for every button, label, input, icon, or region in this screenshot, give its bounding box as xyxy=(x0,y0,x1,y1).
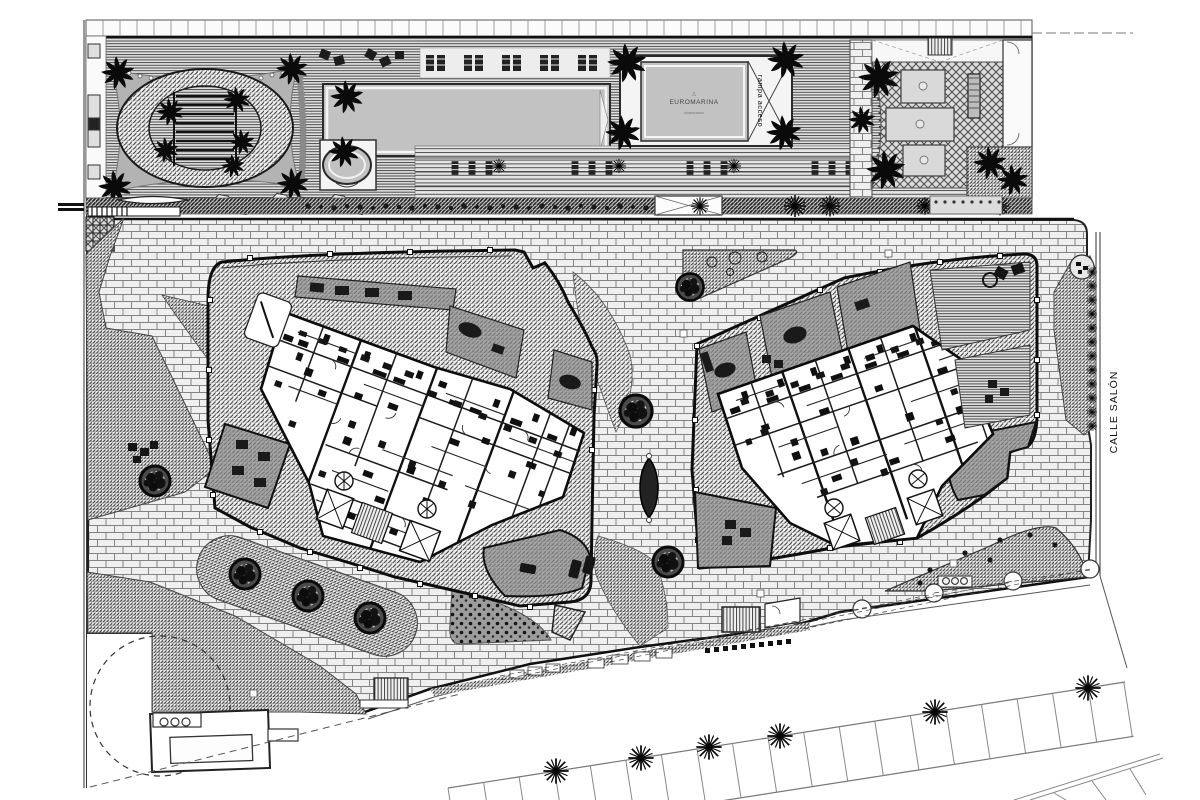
svg-text:EUROMARINA: EUROMARINA xyxy=(669,99,718,106)
svg-text:△: △ xyxy=(692,91,696,97)
svg-text:CALLE SALÓN: CALLE SALÓN xyxy=(1107,371,1120,454)
svg-text:rampa acceso: rampa acceso xyxy=(756,75,765,127)
svg-text:urbanizacion: urbanizacion xyxy=(684,111,704,115)
